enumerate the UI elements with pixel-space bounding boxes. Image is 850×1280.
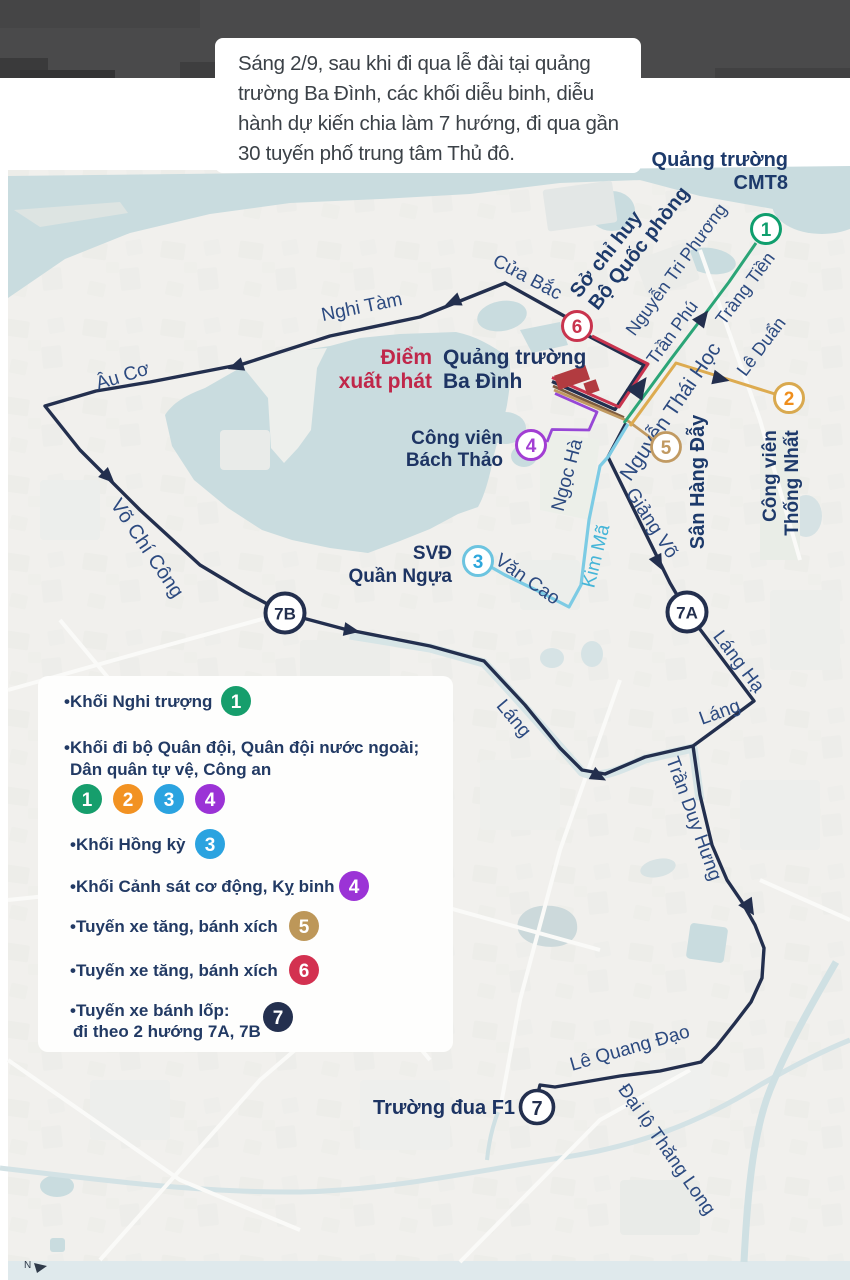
svg-text:•Khối Cảnh sát cơ động, Kỵ bin: •Khối Cảnh sát cơ động, Kỵ binh xyxy=(70,877,335,896)
svg-text:Sân Hàng Đẫy: Sân Hàng Đẫy xyxy=(685,414,709,549)
svg-text:•Tuyến xe bánh lốp:: •Tuyến xe bánh lốp: xyxy=(70,1001,230,1020)
svg-text:•Tuyến xe tăng, bánh xích: •Tuyến xe tăng, bánh xích xyxy=(70,961,278,980)
svg-text:SVĐ: SVĐ xyxy=(413,543,452,564)
svg-text:•Tuyến xe tăng, bánh xích: •Tuyến xe tăng, bánh xích xyxy=(70,917,278,936)
svg-text:1: 1 xyxy=(231,692,242,713)
svg-text:Quảng trường: Quảng trường xyxy=(652,149,788,171)
svg-text:4: 4 xyxy=(349,877,360,898)
svg-text:1: 1 xyxy=(82,790,93,811)
svg-text:Sáng 2/9, sau khi đi qua lễ đà: Sáng 2/9, sau khi đi qua lễ đài tại quản… xyxy=(238,52,590,75)
svg-text:3: 3 xyxy=(205,835,216,856)
svg-text:•Khối đi bộ Quân đội, Quân đội: •Khối đi bộ Quân đội, Quân đội nước ngoà… xyxy=(64,738,419,757)
svg-text:3: 3 xyxy=(164,790,175,811)
svg-text:Bách Thảo: Bách Thảo xyxy=(406,450,503,471)
svg-text:N: N xyxy=(24,1260,31,1271)
svg-text:hành dự kiến chia làm 7 hướng,: hành dự kiến chia làm 7 hướng, đi qua gầ… xyxy=(238,112,619,135)
svg-text:Ba Đình: Ba Đình xyxy=(443,370,522,393)
svg-text:7A: 7A xyxy=(676,604,698,623)
svg-text:5: 5 xyxy=(299,917,310,938)
svg-text:Quần Ngựa: Quần Ngựa xyxy=(349,566,453,587)
svg-text:đi theo 2 hướng 7A, 7B: đi theo 2 hướng 7A, 7B xyxy=(73,1022,261,1041)
svg-text:•Khối Nghi trượng: •Khối Nghi trượng xyxy=(64,692,212,711)
svg-text:30 tuyến phố trung tâm Thủ đô.: 30 tuyến phố trung tâm Thủ đô. xyxy=(238,142,515,165)
svg-text:trường Ba Đình, các khối diễu: trường Ba Đình, các khối diễu binh, diễu xyxy=(238,82,594,105)
svg-text:Dân quân tự vệ, Công an: Dân quân tự vệ, Công an xyxy=(70,760,271,779)
svg-text:7: 7 xyxy=(273,1008,284,1029)
svg-text:xuất phát: xuất phát xyxy=(339,370,432,393)
svg-text:6: 6 xyxy=(299,961,310,982)
svg-text:2: 2 xyxy=(123,790,134,811)
svg-text:3: 3 xyxy=(473,552,484,573)
svg-text:4: 4 xyxy=(526,436,537,457)
svg-text:Thống Nhất: Thống Nhất xyxy=(782,430,803,536)
svg-text:1: 1 xyxy=(761,220,772,241)
svg-text:7: 7 xyxy=(531,1098,542,1120)
svg-text:Trường đua F1: Trường đua F1 xyxy=(373,1097,515,1119)
svg-text:5: 5 xyxy=(661,438,672,459)
svg-text:Điểm: Điểm xyxy=(381,346,432,369)
svg-text:Quảng trường: Quảng trường xyxy=(443,346,586,369)
svg-text:7B: 7B xyxy=(274,605,296,624)
svg-text:Công viên: Công viên xyxy=(411,428,503,449)
svg-text:2: 2 xyxy=(784,389,795,410)
svg-text:6: 6 xyxy=(572,317,583,338)
svg-text:•Khối Hồng kỳ: •Khối Hồng kỳ xyxy=(70,835,186,854)
svg-text:CMT8: CMT8 xyxy=(734,172,788,194)
svg-text:Công viên: Công viên xyxy=(760,430,781,522)
svg-text:4: 4 xyxy=(205,790,216,811)
